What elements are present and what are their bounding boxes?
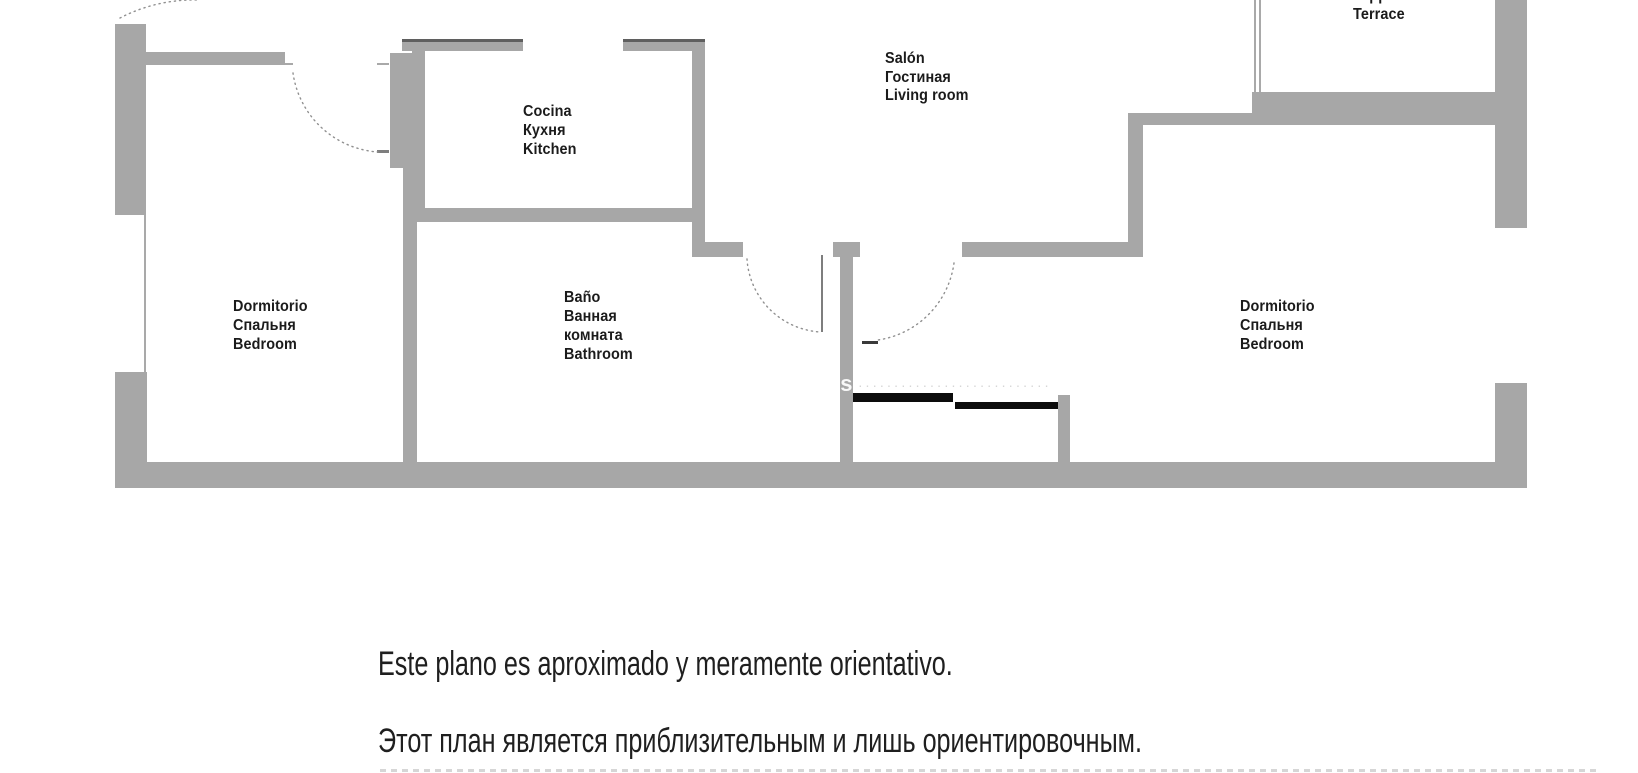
- room-label-kitchen: Cocina Кухня Kitchen: [523, 102, 577, 159]
- room-label-line: Спальня: [1240, 316, 1315, 335]
- room-label-line: Terrace: [1353, 5, 1412, 24]
- room-label-line: Dormitorio: [233, 297, 308, 316]
- room-label-line: Гостиная: [885, 69, 969, 88]
- room-label-line: Bathroom: [564, 345, 633, 364]
- disclaimer-line-es: Este plano es aproximado y meramente ori…: [378, 646, 953, 682]
- room-label-line: Спальня: [233, 316, 308, 335]
- room-label-line: Salón: [885, 50, 969, 69]
- room-label-line: Living room: [885, 87, 969, 106]
- room-label-line: Кухня: [523, 121, 577, 140]
- room-label-line: Bedroom: [1240, 335, 1315, 354]
- room-label-line: Dormitorio: [1240, 297, 1315, 316]
- room-label-line: Kitchen: [523, 140, 577, 159]
- watermark-text: ils: [828, 373, 852, 395]
- room-label-line: комната: [564, 326, 633, 345]
- room-label-line: Baño: [564, 288, 633, 307]
- disclaimer-line-ru: Этот план является приблизительным и лиш…: [378, 723, 1142, 759]
- room-label-line: Ванная: [564, 307, 633, 326]
- floor-plan-canvas: Dormitorio Спальня Bedroom Cocina Кухня …: [0, 0, 1638, 773]
- hall-door-arc: [878, 263, 954, 340]
- room-label-line: Cocina: [523, 102, 577, 121]
- room-label-bedroom-left: Dormitorio Спальня Bedroom: [233, 297, 308, 354]
- room-label-living-room: Salón Гостиная Living room: [885, 50, 969, 106]
- watermark-faint-dots: ···························: [858, 377, 1051, 393]
- bathroom-door-arc: [747, 259, 821, 332]
- room-label-bathroom: Baño Ванная комната Bathroom: [564, 288, 633, 364]
- entrance-door-arc: [120, 0, 198, 18]
- cropped-text-artifact: [380, 769, 1600, 772]
- bedroom1-door-arc: [293, 73, 378, 152]
- room-label-bedroom-right: Dormitorio Спальня Bedroom: [1240, 297, 1315, 354]
- room-label-terrace: Terraza Терраса Terrace: [1353, 0, 1412, 24]
- room-label-line: Bedroom: [233, 335, 308, 354]
